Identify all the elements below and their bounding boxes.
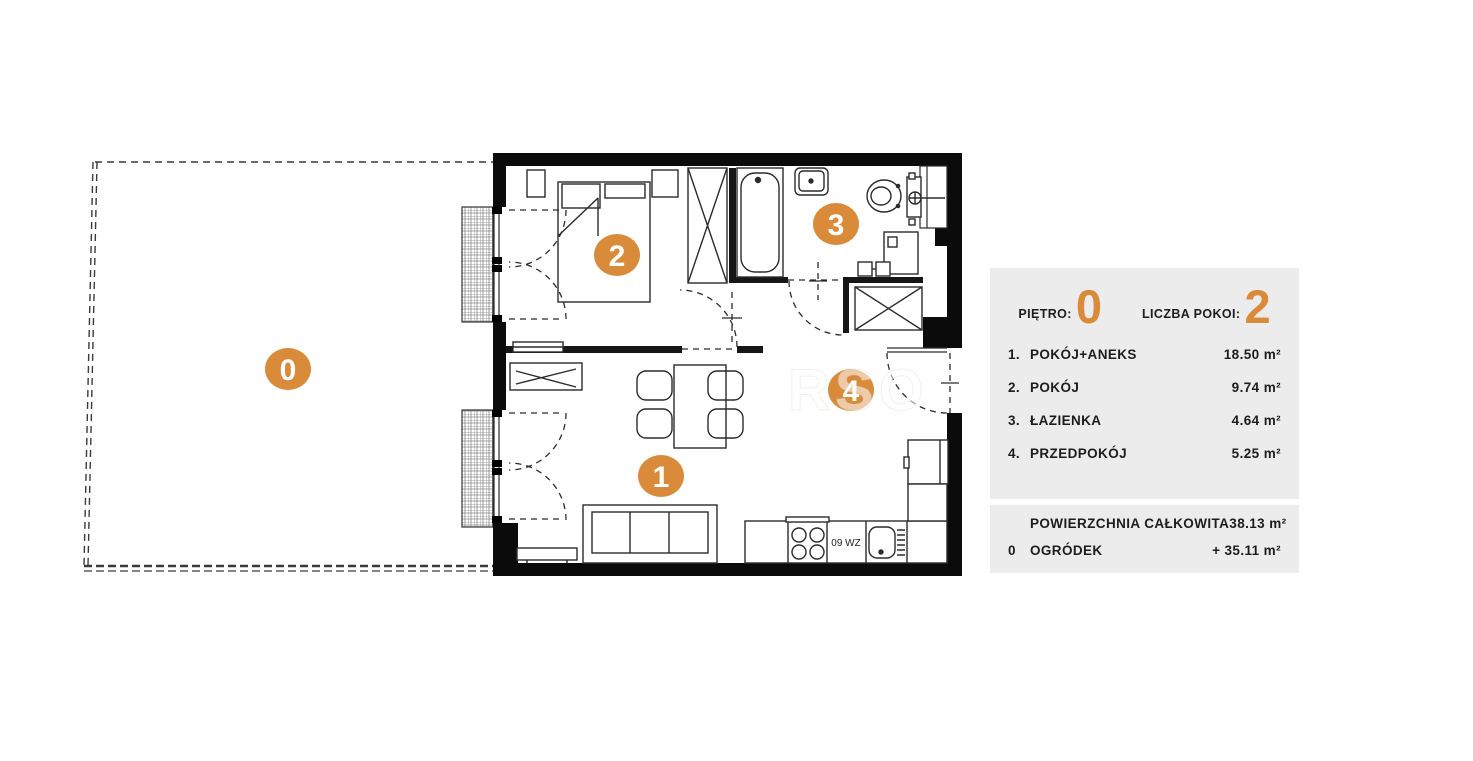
room-marker-1: 1 xyxy=(638,455,684,497)
summary-name: POWIERZCHNIA CAŁKOWITA xyxy=(1030,516,1229,531)
summary-row: 0 OGRÓDEK + 35.11 m² xyxy=(1008,543,1281,570)
summary-prefix: 0 xyxy=(1008,543,1030,558)
radiator-living xyxy=(517,548,577,560)
rooms-count-indicator: LICZBA POKOI: 2 xyxy=(1142,289,1271,326)
svg-text:0: 0 xyxy=(280,354,297,387)
panel-header: PIĘTRO: 0 LICZBA POKOI: 2 xyxy=(990,268,1299,326)
panel-main-box: PIĘTRO: 0 LICZBA POKOI: 2 1. POKÓJ+ANEKS… xyxy=(990,268,1299,499)
room-number: 3. xyxy=(1008,413,1030,428)
panel-summary-box: POWIERZCHNIA CAŁKOWITA 38.13 m² 0 OGRÓDE… xyxy=(990,505,1299,573)
room-name: POKÓJ+ANEKS xyxy=(1030,347,1224,362)
kitchen-counter-side xyxy=(908,484,947,521)
room-name: ŁAZIENKA xyxy=(1030,413,1232,428)
room-name: POKÓJ xyxy=(1030,380,1232,395)
fridge xyxy=(908,440,948,484)
floor-value: 0 xyxy=(1076,289,1102,326)
room-marker-3: 3 xyxy=(813,203,859,245)
kitchen-units: 09 WZ xyxy=(745,440,948,563)
watermark-text: RSO xyxy=(788,358,929,423)
room-area: 9.74 m² xyxy=(1232,380,1281,395)
room-area: 4.64 m² xyxy=(1232,413,1281,428)
nightstand-left xyxy=(527,170,545,197)
room-list: 1. POKÓJ+ANEKS 18.50 m² 2. POKÓJ 9.74 m²… xyxy=(990,347,1299,479)
svg-text:3: 3 xyxy=(828,209,845,242)
room-list-row: 4. PRZEDPOKÓJ 5.25 m² xyxy=(1008,446,1281,479)
bathtub-faucet xyxy=(756,178,761,183)
shaft-niche xyxy=(920,166,947,228)
summary-area: 38.13 m² xyxy=(1229,516,1286,531)
balcony-door-living xyxy=(509,413,566,470)
room-name: PRZEDPOKÓJ xyxy=(1030,446,1232,461)
room-area: 5.25 m² xyxy=(1232,446,1281,461)
room-marker-2: 2 xyxy=(594,234,640,276)
nightstand-right xyxy=(652,170,678,197)
bathroom-door xyxy=(789,281,843,335)
grille-living xyxy=(462,410,493,527)
room-number: 1. xyxy=(1008,347,1030,362)
chair xyxy=(637,371,672,400)
grille-bedroom xyxy=(462,207,493,322)
svg-text:2: 2 xyxy=(609,240,626,273)
kitchen-unit-label: 09 WZ xyxy=(831,538,860,549)
summary-row: POWIERZCHNIA CAŁKOWITA 38.13 m² xyxy=(1008,516,1281,543)
hall-shaft xyxy=(855,287,922,330)
sofa xyxy=(583,505,717,563)
room-number: 4. xyxy=(1008,446,1030,461)
rooms-count-label: LICZBA POKOI: xyxy=(1142,307,1240,326)
info-panel: PIĘTRO: 0 LICZBA POKOI: 2 1. POKÓJ+ANEKS… xyxy=(990,268,1299,573)
room-marker-0: 0 xyxy=(265,348,311,390)
room-list-row: 1. POKÓJ+ANEKS 18.50 m² xyxy=(1008,347,1281,380)
pillow xyxy=(605,184,645,198)
floor-label: PIĘTRO: xyxy=(1018,307,1072,326)
room-area: 18.50 m² xyxy=(1224,347,1281,362)
chair xyxy=(637,409,672,438)
pillow xyxy=(562,184,600,208)
room-number: 2. xyxy=(1008,380,1030,395)
floor-indicator: PIĘTRO: 0 xyxy=(1018,289,1102,326)
room-list-row: 3. ŁAZIENKA 4.64 m² xyxy=(1008,413,1281,446)
rooms-count-value: 2 xyxy=(1244,289,1270,326)
floorplan-page: 09 WZ 0 xyxy=(0,0,1473,761)
summary-area: + 35.11 m² xyxy=(1212,543,1281,558)
svg-text:1: 1 xyxy=(653,461,670,494)
dining-table xyxy=(674,365,726,448)
room-list-row: 2. POKÓJ 9.74 m² xyxy=(1008,380,1281,413)
summary-list: POWIERZCHNIA CAŁKOWITA 38.13 m² 0 OGRÓDE… xyxy=(990,505,1299,570)
living-furniture xyxy=(510,363,743,563)
exterior-grilles xyxy=(462,207,493,527)
summary-name: OGRÓDEK xyxy=(1030,543,1212,558)
